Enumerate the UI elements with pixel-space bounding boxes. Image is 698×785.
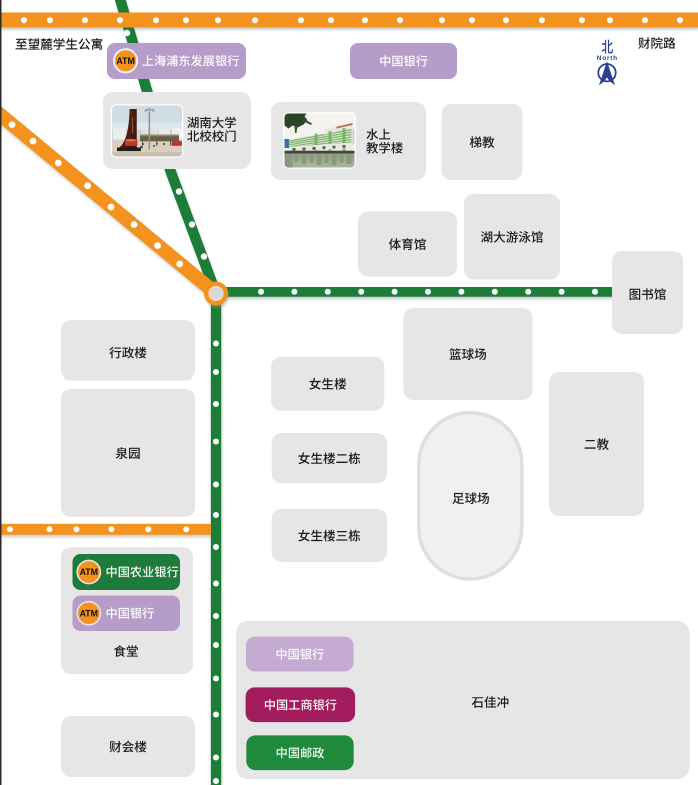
- svg-text:ATM: ATM: [116, 56, 134, 66]
- svg-text:North: North: [597, 55, 618, 62]
- svg-text:ATM: ATM: [80, 608, 98, 618]
- svg-text:ATM: ATM: [80, 567, 98, 577]
